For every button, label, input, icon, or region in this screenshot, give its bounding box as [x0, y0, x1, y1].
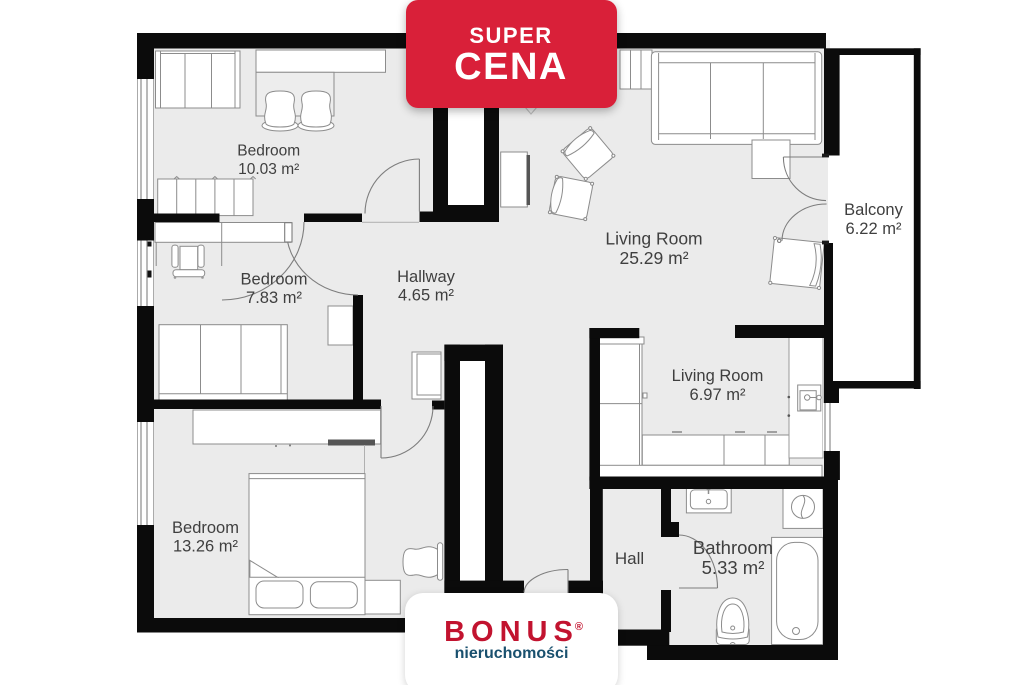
svg-text:Hallway: Hallway — [397, 268, 456, 286]
svg-text:Balcony: Balcony — [844, 201, 903, 219]
svg-text:6.22 m²: 6.22 m² — [846, 220, 902, 238]
svg-text:25.29 m²: 25.29 m² — [619, 248, 688, 268]
svg-text:7.83 m²: 7.83 m² — [246, 289, 302, 307]
svg-text:10.03 m²: 10.03 m² — [238, 161, 299, 178]
svg-text:Living Room: Living Room — [605, 228, 702, 248]
svg-text:Bedroom: Bedroom — [241, 271, 308, 289]
svg-text:Hall: Hall — [615, 549, 644, 568]
svg-text:5.33 m²: 5.33 m² — [702, 557, 765, 578]
svg-text:13.26 m²: 13.26 m² — [173, 538, 239, 556]
svg-text:Bedroom: Bedroom — [237, 142, 300, 159]
svg-text:Bathroom: Bathroom — [693, 537, 773, 558]
svg-text:Bedroom: Bedroom — [172, 519, 239, 537]
svg-text:Living Room: Living Room — [672, 367, 764, 385]
svg-text:6.97 m²: 6.97 m² — [690, 386, 746, 404]
svg-text:4.65 m²: 4.65 m² — [398, 286, 454, 304]
